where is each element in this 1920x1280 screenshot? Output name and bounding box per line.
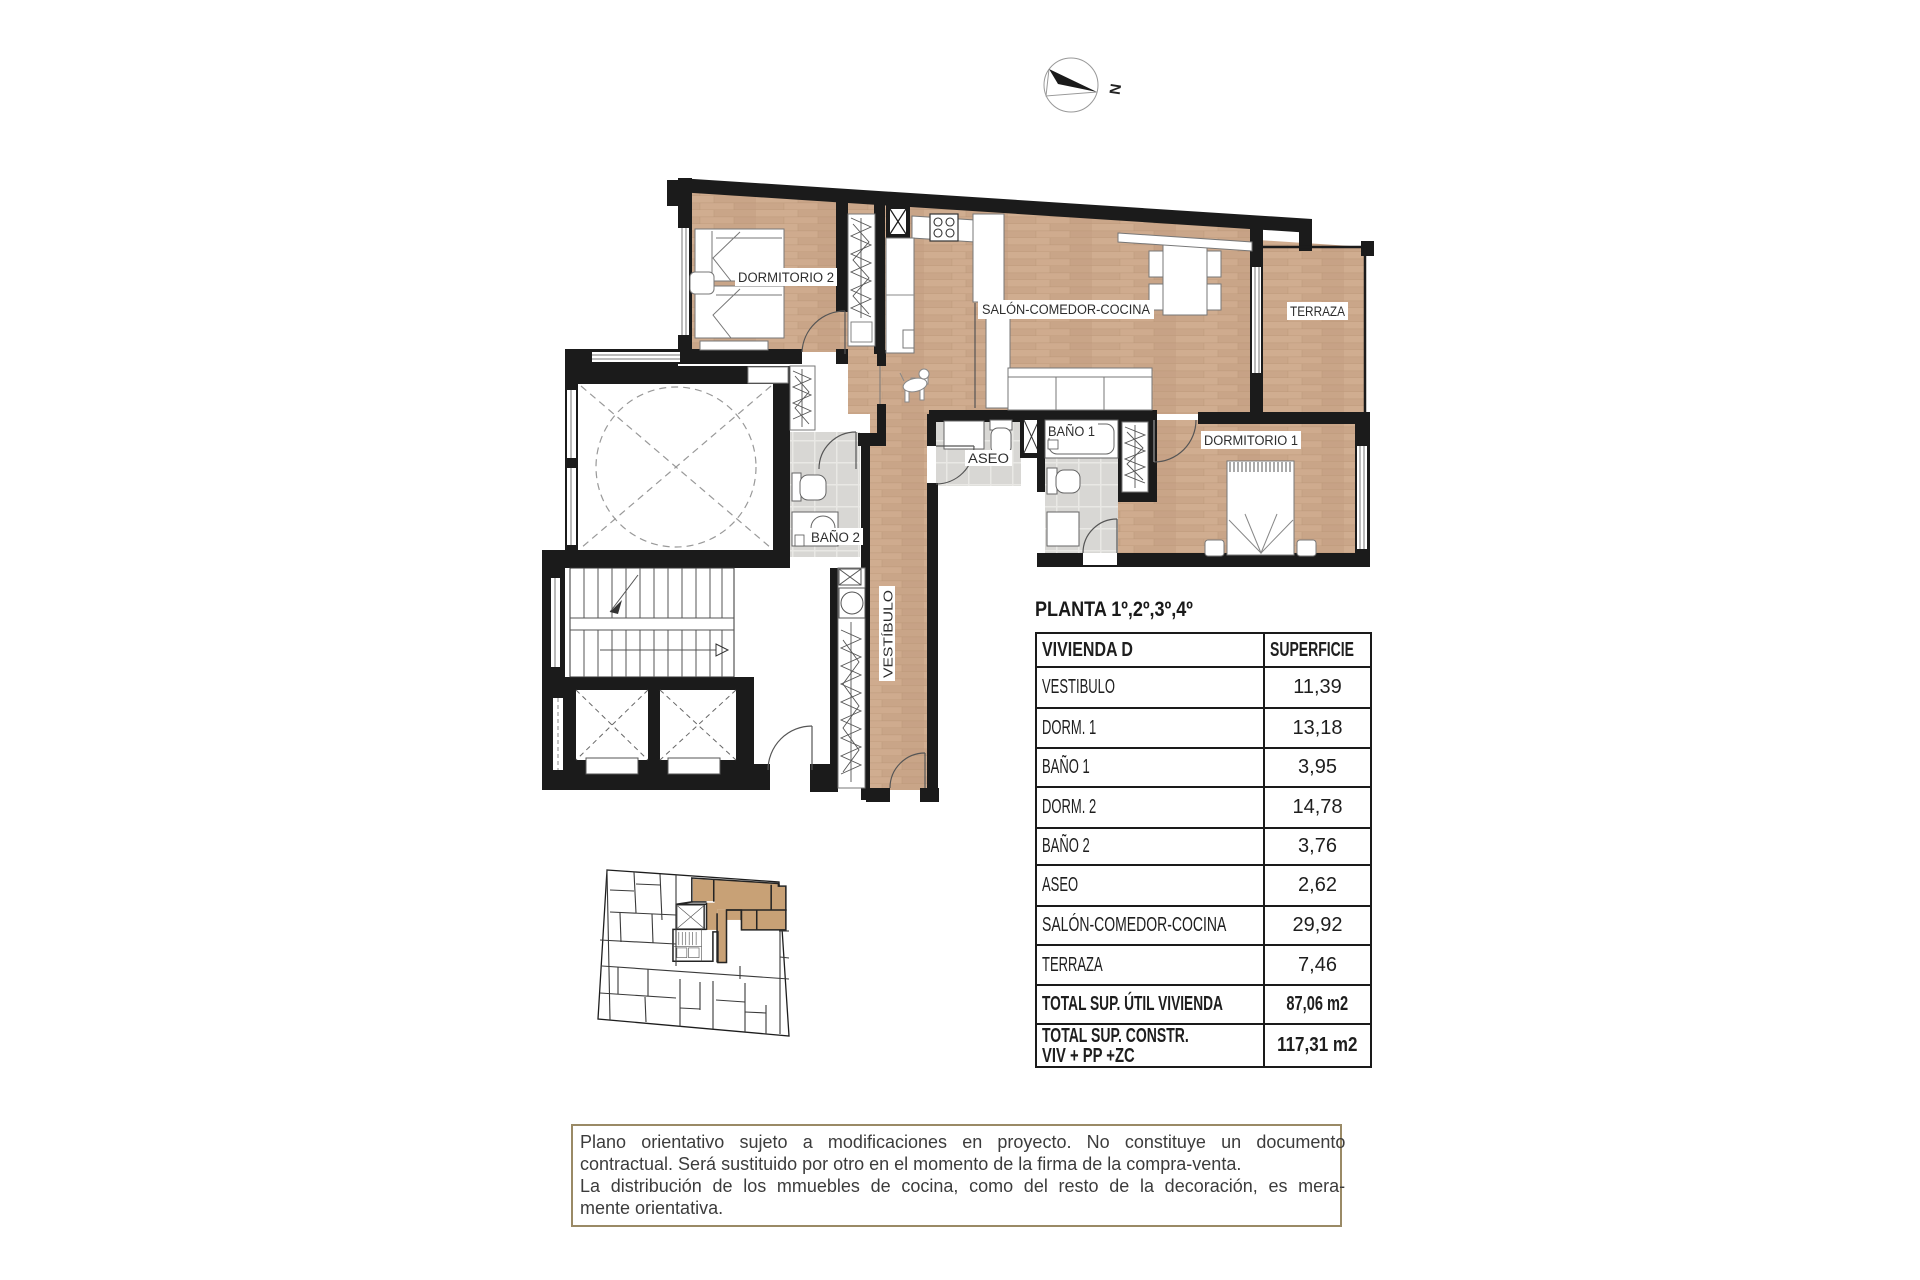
svg-text:BAÑO 1: BAÑO 1 — [1048, 424, 1095, 439]
svg-text:DORMITORIO 1: DORMITORIO 1 — [1204, 433, 1298, 448]
svg-text:SALÓN-COMEDOR-COCINA: SALÓN-COMEDOR-COCINA — [982, 302, 1150, 317]
svg-text:ASEO: ASEO — [968, 451, 1009, 466]
svg-text:BAÑO 2: BAÑO 2 — [811, 530, 860, 545]
svg-text:VESTÍBULO: VESTÍBULO — [881, 590, 896, 678]
svg-text:TERRAZA: TERRAZA — [1290, 304, 1345, 319]
svg-text:N: N — [1105, 82, 1123, 95]
svg-text:DORMITORIO 2: DORMITORIO 2 — [738, 270, 834, 285]
